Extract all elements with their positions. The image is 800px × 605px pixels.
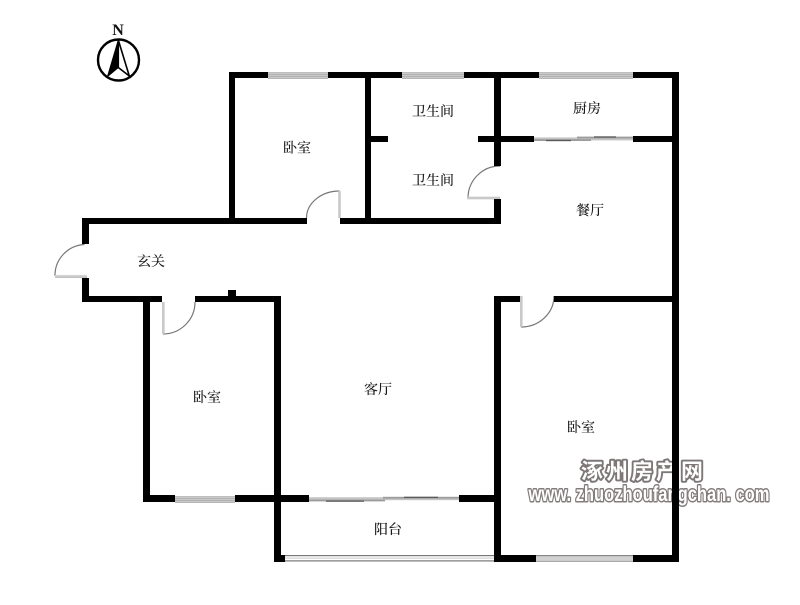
svg-text:www. zhuozhoufangchan. com: www. zhuozhoufangchan. com bbox=[528, 483, 770, 506]
svg-text:N: N bbox=[112, 22, 124, 39]
